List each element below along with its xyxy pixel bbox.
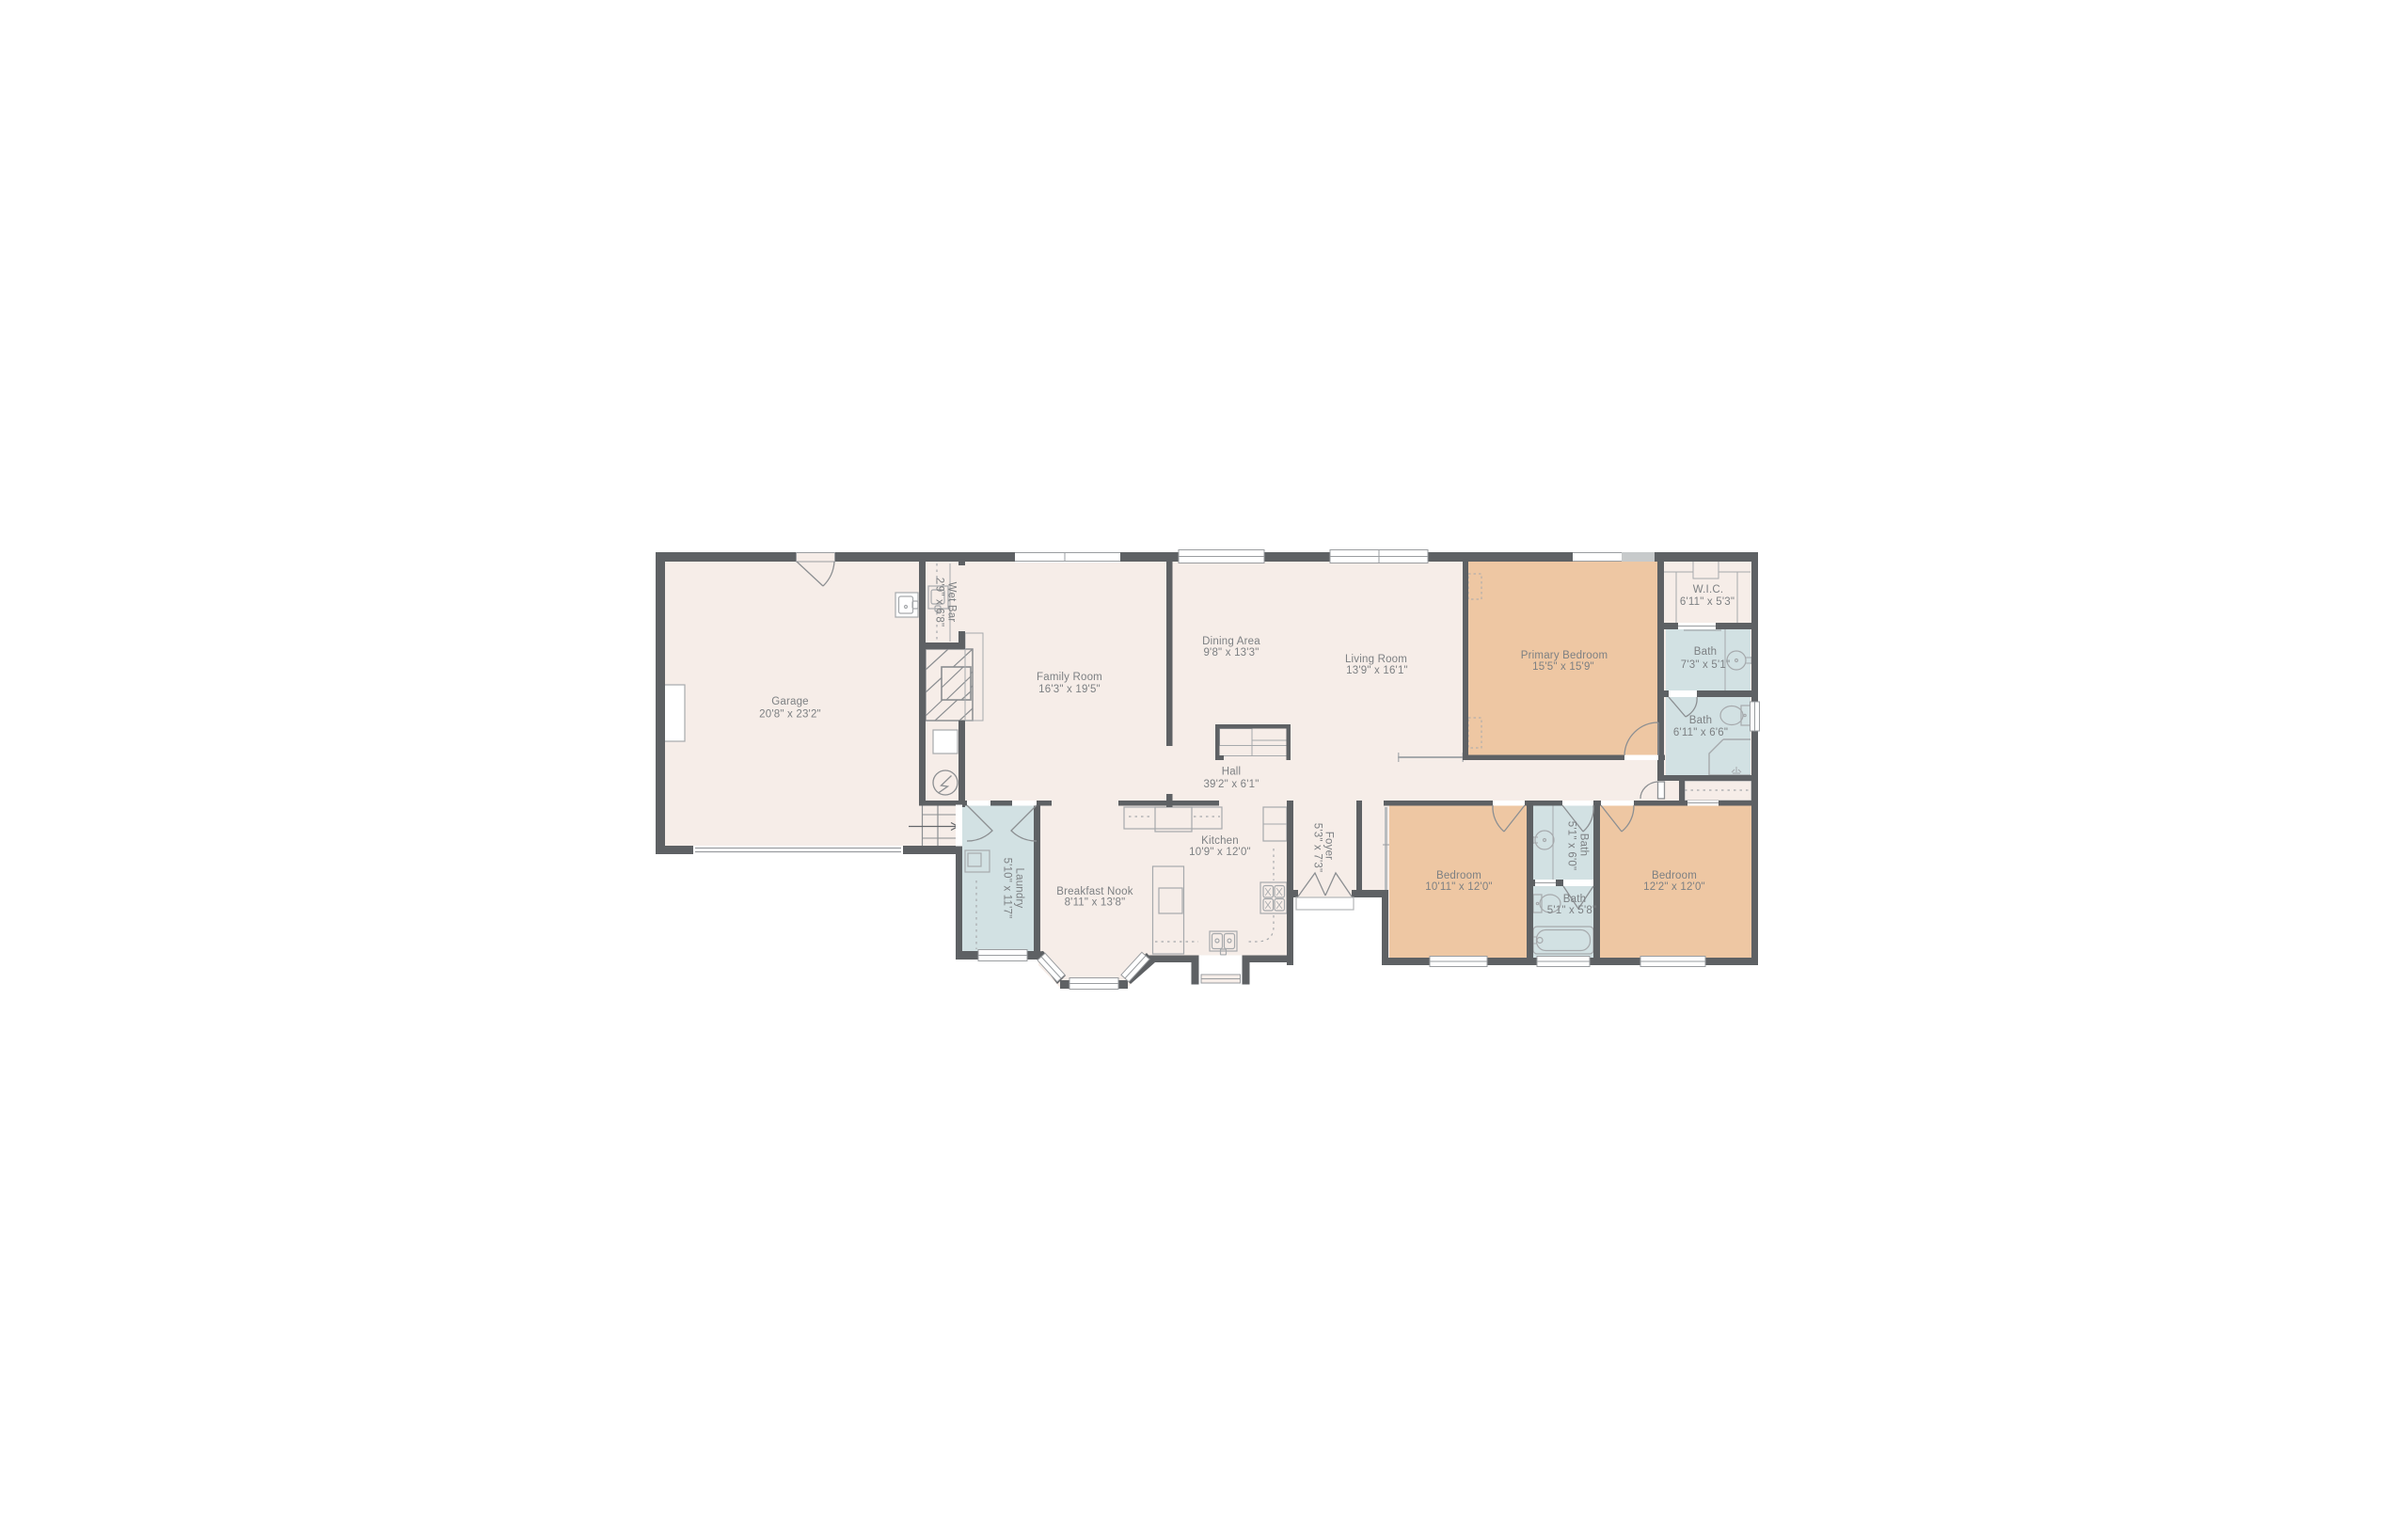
svg-text:Hall: Hall <box>1222 767 1242 778</box>
svg-text:Kitchen: Kitchen <box>1201 835 1239 847</box>
svg-text:Wet Bar: Wet Bar <box>946 582 958 623</box>
svg-text:Bath: Bath <box>1563 894 1586 905</box>
svg-text:5'1" x 6'0": 5'1" x 6'0" <box>1566 821 1577 870</box>
svg-text:5'10" x 11'7": 5'10" x 11'7" <box>1002 858 1013 919</box>
svg-text:7'3" x 5'1": 7'3" x 5'1" <box>1681 659 1730 671</box>
svg-text:Bath: Bath <box>1689 715 1712 726</box>
svg-text:Foyer: Foyer <box>1323 832 1335 860</box>
svg-text:Dining Area: Dining Area <box>1202 636 1260 647</box>
svg-text:6'11" x 5'3": 6'11" x 5'3" <box>1680 596 1735 608</box>
svg-text:Bath: Bath <box>1578 833 1590 856</box>
svg-text:9'8" x 13'3": 9'8" x 13'3" <box>1203 647 1259 658</box>
svg-text:6'11" x 6'6": 6'11" x 6'6" <box>1673 727 1728 738</box>
svg-text:39'2" x 6'1": 39'2" x 6'1" <box>1203 779 1259 790</box>
svg-text:15'5" x 15'9": 15'5" x 15'9" <box>1532 661 1594 673</box>
svg-text:Breakfast Nook: Breakfast Nook <box>1056 886 1133 897</box>
svg-text:5'3" x 7'3": 5'3" x 7'3" <box>1312 823 1323 872</box>
svg-text:2'9" x 6'8": 2'9" x 6'8" <box>934 578 945 627</box>
svg-text:Bath: Bath <box>1694 646 1717 658</box>
svg-text:10'9" x 12'0": 10'9" x 12'0" <box>1189 847 1251 858</box>
svg-text:Bedroom: Bedroom <box>1436 870 1481 881</box>
svg-text:13'9" x 16'1": 13'9" x 16'1" <box>1346 665 1408 676</box>
svg-text:Bedroom: Bedroom <box>1652 870 1697 881</box>
svg-text:Laundry: Laundry <box>1014 868 1025 909</box>
svg-text:Primary Bedroom: Primary Bedroom <box>1521 650 1608 661</box>
svg-text:16'3" x 19'5": 16'3" x 19'5" <box>1038 684 1101 695</box>
svg-text:20'8" x 23'2": 20'8" x 23'2" <box>759 709 821 721</box>
svg-text:Family Room: Family Room <box>1037 672 1102 683</box>
svg-text:Living Room: Living Room <box>1345 654 1407 665</box>
svg-text:12'2" x 12'0": 12'2" x 12'0" <box>1643 881 1705 893</box>
svg-text:W.I.C.: W.I.C. <box>1693 584 1724 595</box>
svg-text:8'11" x 13'8": 8'11" x 13'8" <box>1065 897 1126 909</box>
svg-text:Garage: Garage <box>771 696 809 707</box>
svg-text:5'1" x 5'8": 5'1" x 5'8" <box>1547 905 1596 916</box>
svg-text:10'11" x 12'0": 10'11" x 12'0" <box>1425 881 1492 893</box>
